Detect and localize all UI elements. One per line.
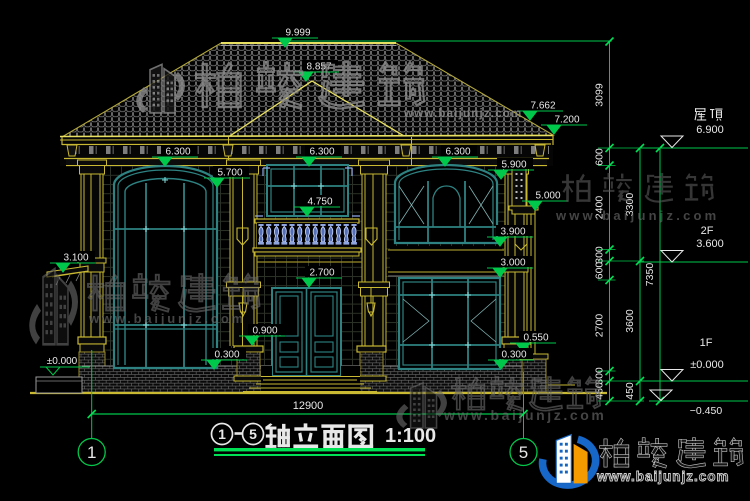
svg-text:3.900: 3.900 [500,227,525,238]
svg-text:±0.000: ±0.000 [47,356,78,367]
svg-text:4.750: 4.750 [307,197,332,208]
svg-text:7.662: 7.662 [530,101,555,112]
svg-text:9.999: 9.999 [285,28,310,39]
svg-text:0.300: 0.300 [214,350,239,361]
svg-text:3600: 3600 [624,309,636,333]
svg-text:5.700: 5.700 [217,168,242,179]
svg-text:5: 5 [249,426,257,442]
svg-text:1F: 1F [700,337,713,349]
svg-text:12900: 12900 [293,400,324,412]
svg-text:1: 1 [87,443,96,462]
svg-text:600: 600 [594,262,606,280]
svg-text:6.300: 6.300 [445,147,470,158]
svg-text:450: 450 [624,382,636,400]
svg-text:2F: 2F [701,225,714,237]
svg-text:www.baijunjz.com: www.baijunjz.com [443,407,606,423]
svg-text:5.900: 5.900 [501,160,526,171]
svg-text:www.baijunjz.com: www.baijunjz.com [403,108,522,120]
svg-text:6.300: 6.300 [309,147,334,158]
svg-text:3099: 3099 [594,83,606,107]
svg-text:±0.000: ±0.000 [690,359,724,371]
svg-text:2.700: 2.700 [309,268,334,279]
svg-text:5: 5 [519,443,528,462]
svg-text:www.baijunjz.com: www.baijunjz.com [555,208,719,223]
svg-text:3.600: 3.600 [696,238,724,250]
svg-text:−0.450: −0.450 [690,405,723,417]
svg-text:6.900: 6.900 [696,124,724,136]
svg-text:5.000: 5.000 [535,191,560,202]
svg-text:600: 600 [594,148,606,166]
svg-text:300: 300 [594,246,606,264]
svg-text:0.900: 0.900 [252,326,277,337]
svg-text:0.300: 0.300 [501,350,526,361]
svg-text:0.550: 0.550 [523,333,548,344]
svg-text:3.000: 3.000 [500,258,525,269]
svg-text:www.baijunjz.com: www.baijunjz.com [596,469,730,484]
svg-text:3.100: 3.100 [63,253,88,264]
svg-text:www.baijunjz.com: www.baijunjz.com [88,311,246,326]
svg-text:6.300: 6.300 [165,147,190,158]
svg-text:7.200: 7.200 [554,115,579,126]
svg-text:7350: 7350 [644,263,656,287]
svg-text:2700: 2700 [594,314,606,338]
svg-text:8.857: 8.857 [306,62,331,73]
svg-text:1: 1 [218,426,226,442]
